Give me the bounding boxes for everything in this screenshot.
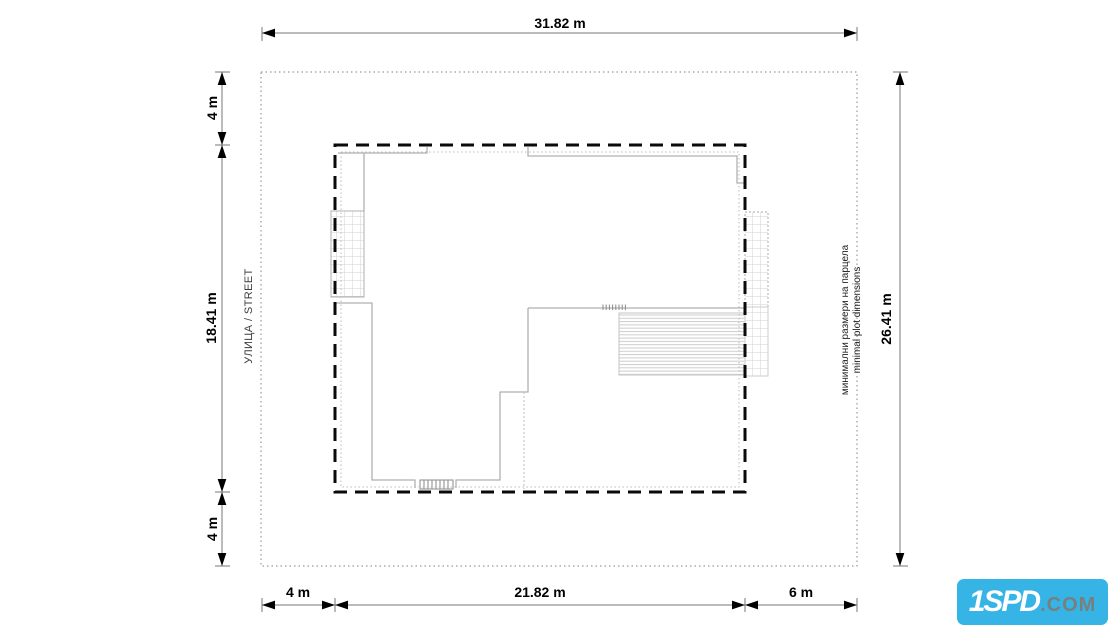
dim-label-plot-width: 31.82 m — [534, 15, 585, 31]
dim-label-plot-height: 26.41 m — [878, 293, 894, 344]
note-label-en: minimal plot dimensions — [852, 267, 863, 374]
window-ticks — [603, 305, 625, 311]
deck-hatch — [619, 313, 745, 375]
logo-suffix-text: .COM — [1040, 595, 1096, 615]
site-plan-canvas: 31.82 m 26.41 m 4 m 18.41 m 4 m 4 m 21.8… — [0, 0, 1120, 632]
dim-label-setback-bottom: 4 m — [204, 517, 220, 541]
note-label-bg: минимални размери на парцела — [840, 244, 851, 395]
balcony-hatch — [745, 212, 768, 307]
site-plan-drawing: 31.82 m 26.41 m 4 m 18.41 m 4 m 4 m 21.8… — [0, 0, 1120, 632]
dimension-lines — [215, 27, 908, 612]
dim-label-setback-left: 4 m — [286, 584, 310, 600]
street-label: УЛИЦА / STREET — [243, 268, 255, 363]
dim-label-setback-right: 6 m — [789, 584, 813, 600]
entrance-stairs — [420, 480, 453, 489]
logo-brand-text: 1SPD — [969, 587, 1039, 617]
1spd-logo: 1SPD .COM — [957, 579, 1108, 625]
dim-label-building-width: 21.82 m — [514, 584, 565, 600]
balcony-grid-lower — [745, 307, 768, 376]
dim-label-building-depth: 18.41 m — [203, 292, 219, 343]
dim-label-setback-top: 4 m — [204, 96, 220, 120]
